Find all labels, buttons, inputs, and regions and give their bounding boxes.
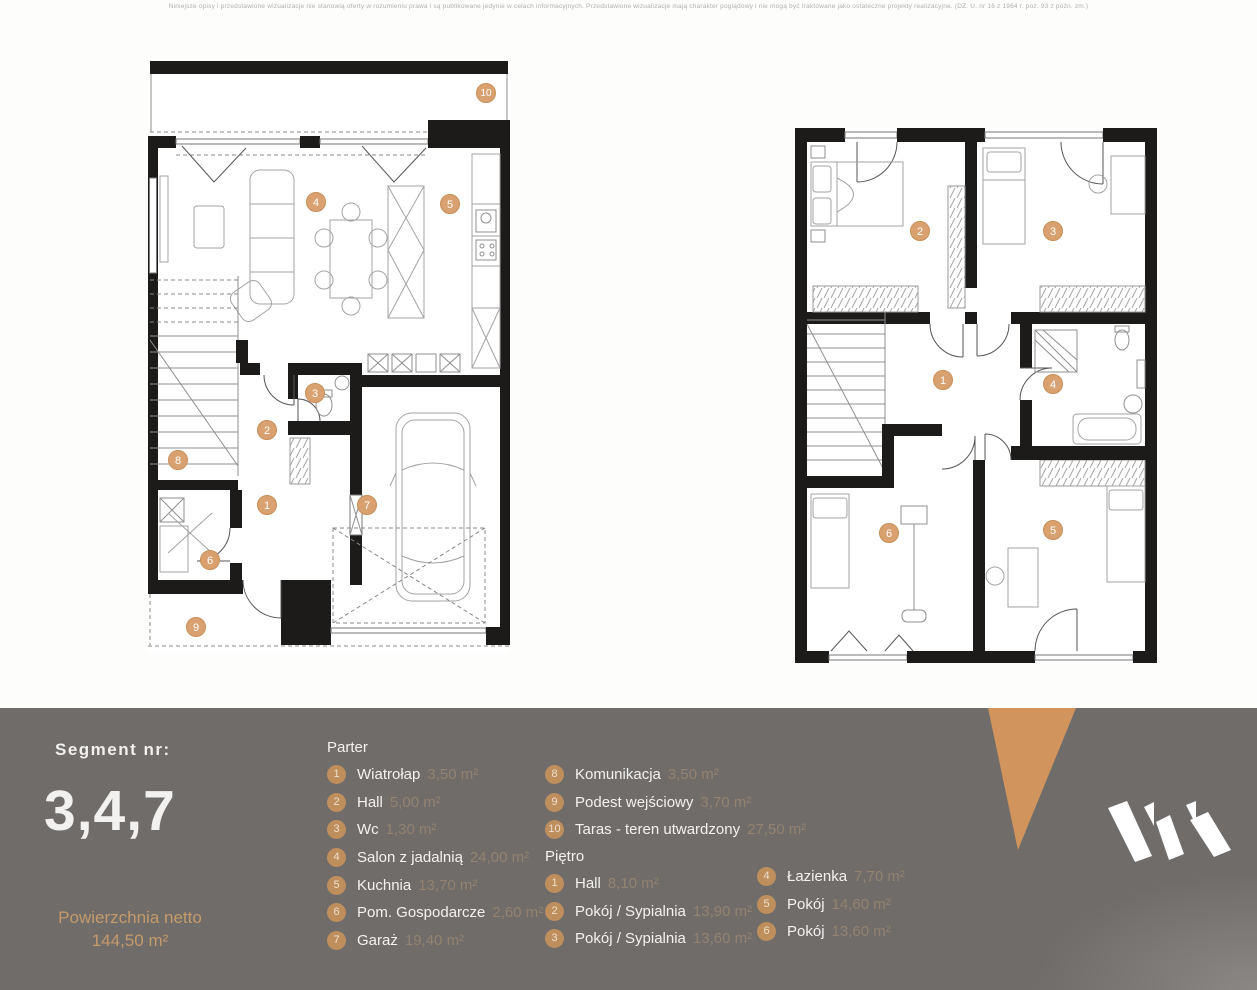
legend-number-badge: 6 <box>327 903 346 922</box>
legend-item-label: Wc <box>357 821 379 838</box>
legend-item: 7Garaż19,40 m² <box>327 927 543 955</box>
legend-item-label: Kuchnia <box>357 877 411 894</box>
net-area-label: Powierzchnia netto <box>30 908 230 928</box>
legend-item: 3Wc1,30 m² <box>327 816 543 844</box>
floorplan-pietro: 231465 <box>795 128 1157 663</box>
legend-item-label: Łazienka <box>787 868 847 885</box>
legend-column-parter: Parter 1Wiatrołap3,50 m² 2Hall5,00 m² 3W… <box>327 735 543 954</box>
legend-item-area: 3,50 m² <box>427 766 478 783</box>
room-marker-8: 8 <box>168 450 188 470</box>
room-marker-2: 2 <box>257 420 277 440</box>
room-marker-9: 9 <box>186 617 206 637</box>
room-marker-6: 6 <box>879 523 899 543</box>
segment-label: Segment nr: <box>55 740 171 760</box>
legend-item-area: 2,60 m² <box>492 904 543 921</box>
legend-item-area: 7,70 m² <box>854 868 905 885</box>
segment-number: 3,4,7 <box>44 778 176 844</box>
legend-number-badge: 7 <box>327 931 346 950</box>
legend-item: 10Taras - teren utwardzony27,50 m² <box>545 816 806 844</box>
legend-number-badge: 6 <box>757 922 776 941</box>
room-marker-6: 6 <box>200 550 220 570</box>
room-marker-4: 4 <box>1043 374 1063 394</box>
legend-item-area: 3,70 m² <box>700 794 751 811</box>
legend-item: 5Kuchnia13,70 m² <box>327 871 543 899</box>
footer-panel: Segment nr: 3,4,7 Powierzchnia netto 144… <box>0 708 1257 990</box>
legend-item-area: 13,90 m² <box>693 903 752 920</box>
legend-item: 6Pom. Gospodarcze2,60 m² <box>327 899 543 927</box>
legend-number-badge: 2 <box>545 902 564 921</box>
legend-item-area: 13,70 m² <box>418 877 477 894</box>
legend-number-badge: 1 <box>327 765 346 784</box>
parter-plan-markers: 10453281769 <box>148 58 510 653</box>
legend-item-label: Salon z jadalnią <box>357 849 463 866</box>
legend-item-label: Wiatrołap <box>357 766 420 783</box>
legend-number-badge: 8 <box>545 765 564 784</box>
legend-item: 6Pokój13,60 m² <box>757 918 905 946</box>
legend-item: 8Komunikacja3,50 m² <box>545 761 806 789</box>
legend-item: 2Hall5,00 m² <box>327 789 543 817</box>
legend-item-label: Pokój <box>787 923 825 940</box>
floorplan-parter: 10453281769 <box>148 58 510 653</box>
legend-item: 1Wiatrołap3,50 m² <box>327 761 543 789</box>
legend-item-label: Pokój / Sypialnia <box>575 903 686 920</box>
legend-item: 9Podest wejściowy3,70 m² <box>545 789 806 817</box>
pietro-plan-markers: 231465 <box>795 128 1157 663</box>
legend-item: 4Salon z jadalnią24,00 m² <box>327 844 543 872</box>
legend-number-badge: 3 <box>545 929 564 948</box>
room-marker-5: 5 <box>440 194 460 214</box>
legend-number-badge: 5 <box>327 876 346 895</box>
legend-item-area: 3,50 m² <box>668 766 719 783</box>
room-marker-10: 10 <box>476 83 496 103</box>
legend-item-area: 14,60 m² <box>832 896 891 913</box>
room-marker-3: 3 <box>1043 221 1063 241</box>
net-area-value: 144,50 m² <box>30 931 230 951</box>
legend-title-parter: Parter <box>327 735 543 761</box>
legend-item: 4Łazienka7,70 m² <box>757 863 905 891</box>
legend-column-pietro: 4Łazienka7,70 m² 5Pokój14,60 m² 6Pokój13… <box>757 863 905 946</box>
developer-logo <box>1098 798 1238 866</box>
legend-item-label: Taras - teren utwardzony <box>575 821 740 838</box>
legal-disclaimer: Niniejsze opisy i przedstawione wizualiz… <box>0 3 1257 10</box>
legend-item-area: 13,60 m² <box>832 923 891 940</box>
room-marker-3: 3 <box>305 383 325 403</box>
legend-item-label: Pokój <box>787 896 825 913</box>
legend-item-area: 27,50 m² <box>747 821 806 838</box>
legend-item-area: 13,60 m² <box>693 930 752 947</box>
legend-number-badge: 1 <box>545 874 564 893</box>
legend-item-label: Podest wejściowy <box>575 794 693 811</box>
legend-item-area: 1,30 m² <box>386 821 437 838</box>
legend-item-label: Hall <box>357 794 383 811</box>
legend-item-area: 24,00 m² <box>470 849 529 866</box>
room-marker-5: 5 <box>1043 520 1063 540</box>
legend-number-badge: 3 <box>327 820 346 839</box>
legend-item-label: Komunikacja <box>575 766 661 783</box>
legend-spacer <box>545 735 806 761</box>
legend-item-label: Hall <box>575 875 601 892</box>
legend-item-area: 8,10 m² <box>608 875 659 892</box>
legend-number-badge: 4 <box>757 867 776 886</box>
room-marker-7: 7 <box>357 495 377 515</box>
accent-triangle <box>988 708 1076 850</box>
legend-item-area: 19,40 m² <box>405 932 464 949</box>
legend-number-badge: 5 <box>757 895 776 914</box>
room-marker-4: 4 <box>306 192 326 212</box>
legend-number-badge: 2 <box>327 793 346 812</box>
legend-item-area: 5,00 m² <box>390 794 441 811</box>
legend-item: 5Pokój14,60 m² <box>757 891 905 919</box>
room-marker-1: 1 <box>933 370 953 390</box>
legend-number-badge: 4 <box>327 848 346 867</box>
legend-item-label: Pom. Gospodarcze <box>357 904 485 921</box>
legend-item-label: Garaż <box>357 932 398 949</box>
room-marker-1: 1 <box>257 495 277 515</box>
legend-number-badge: 10 <box>545 820 564 839</box>
legend-number-badge: 9 <box>545 793 564 812</box>
room-marker-2: 2 <box>910 221 930 241</box>
legend-item-label: Pokój / Sypialnia <box>575 930 686 947</box>
